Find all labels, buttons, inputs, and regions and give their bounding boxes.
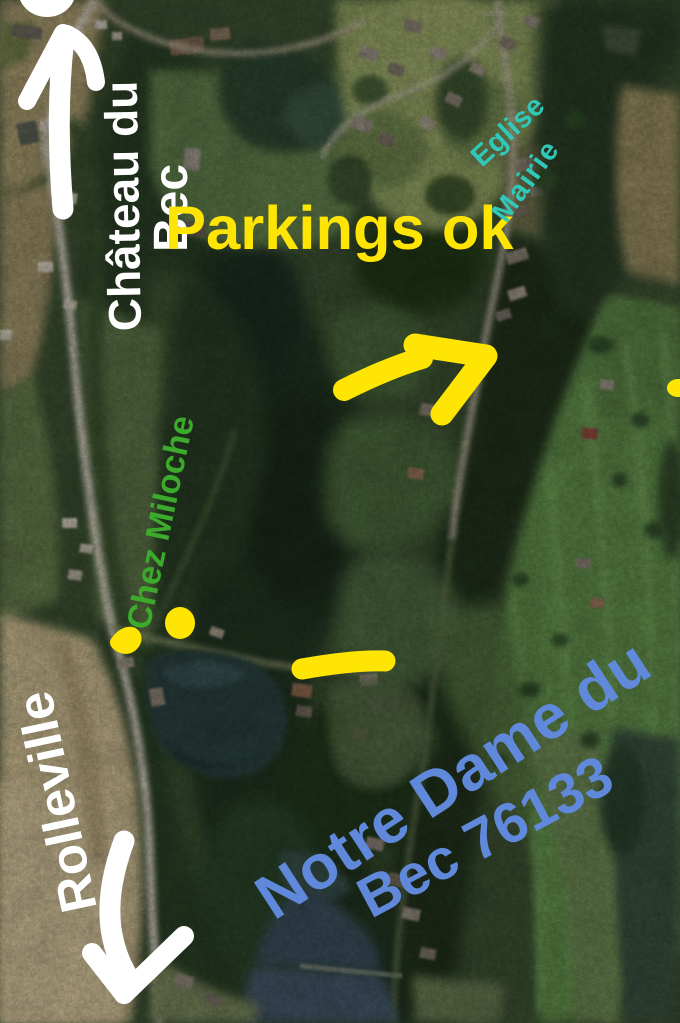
svg-text:Parkings ok: Parkings ok [165,194,514,263]
svg-text:Château du: Château du [95,80,151,331]
